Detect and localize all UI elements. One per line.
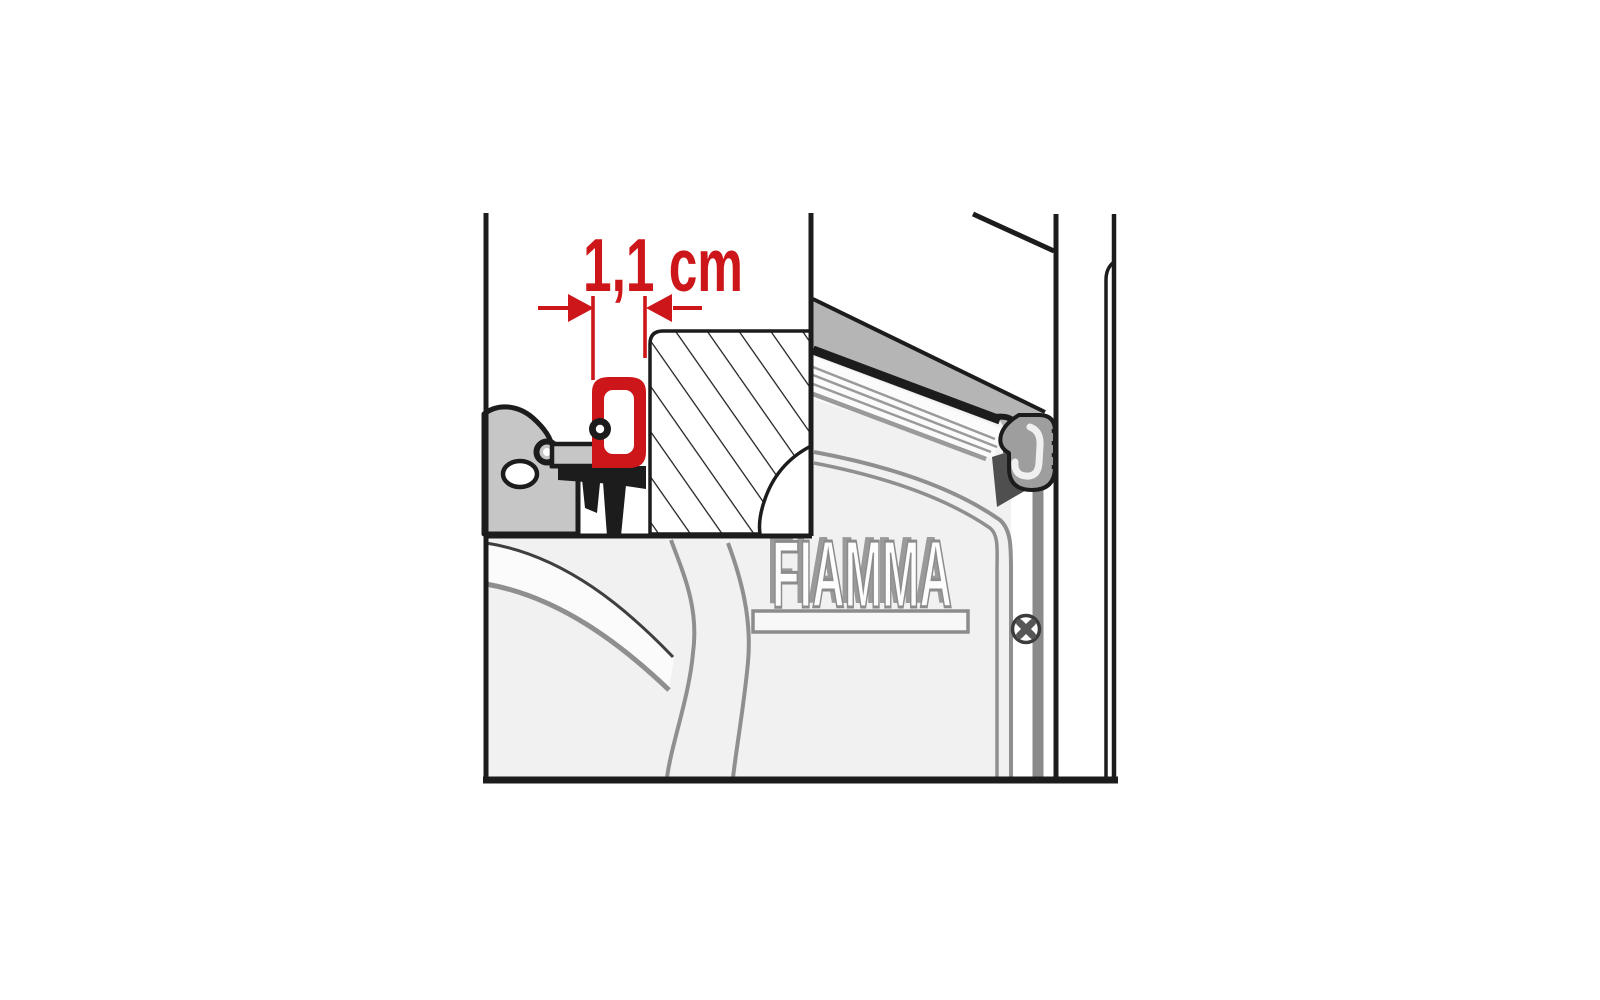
dimension-label: 1,1 cm (583, 223, 743, 307)
logo-underline-bar (753, 611, 968, 632)
figure-svg: FIAMMA FIAMMA (478, 208, 1122, 786)
illustration-canvas: FIAMMA FIAMMA (0, 0, 1600, 1000)
seal-cross-section-red (589, 377, 646, 468)
wall-top-edge (973, 214, 1054, 251)
cross-section-inset: 1,1 cm (484, 212, 812, 537)
screw-icon (1013, 616, 1040, 643)
rail-arm (552, 444, 595, 466)
